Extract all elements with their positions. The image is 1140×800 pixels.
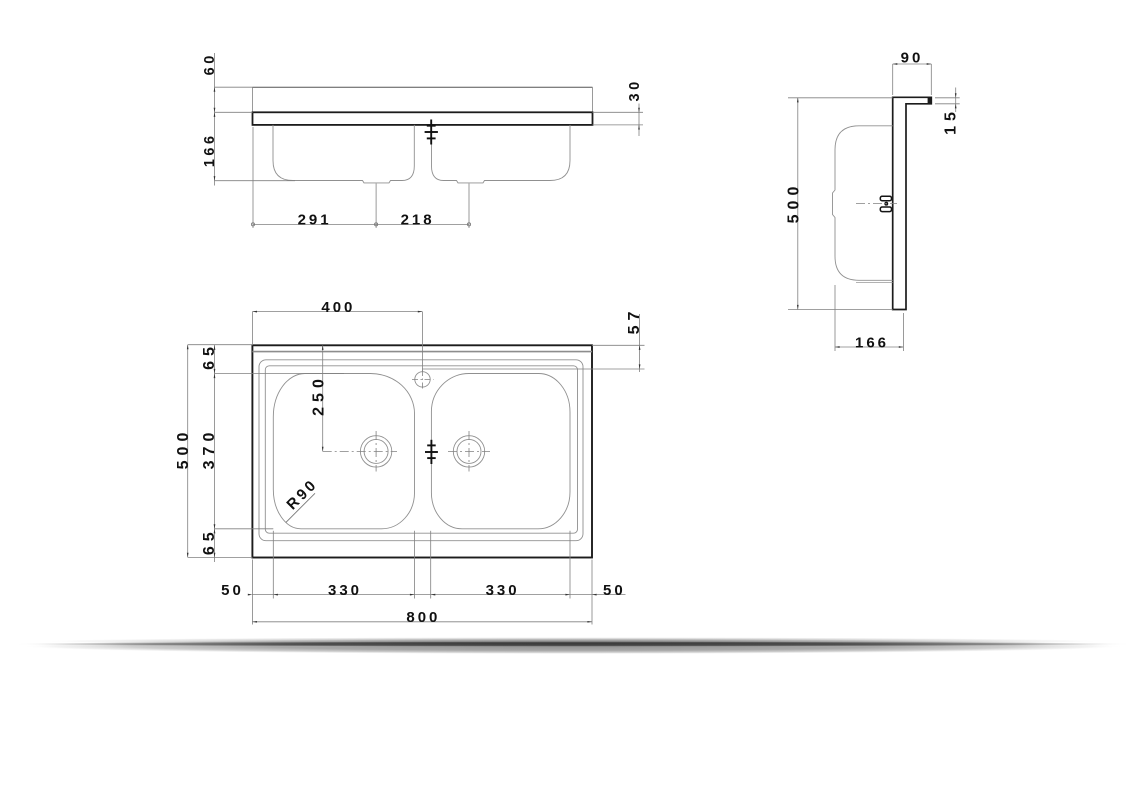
svg-text:R90: R90	[283, 475, 321, 513]
svg-text:291: 291	[298, 211, 332, 228]
svg-text:500: 500	[175, 428, 192, 470]
svg-text:800: 800	[406, 609, 440, 626]
svg-text:30: 30	[627, 78, 643, 101]
svg-text:250: 250	[310, 374, 327, 416]
svg-text:65: 65	[201, 527, 218, 555]
svg-text:15: 15	[942, 107, 959, 135]
svg-text:166: 166	[202, 132, 218, 167]
svg-text:60: 60	[202, 52, 218, 75]
svg-text:65: 65	[201, 342, 218, 370]
svg-text:218: 218	[401, 211, 435, 228]
svg-text:166: 166	[855, 334, 889, 351]
svg-text:50: 50	[603, 582, 626, 599]
svg-text:90: 90	[901, 50, 924, 67]
svg-text:400: 400	[321, 299, 355, 316]
svg-text:330: 330	[486, 582, 520, 599]
svg-text:330: 330	[328, 582, 362, 599]
svg-text:500: 500	[785, 182, 802, 224]
svg-text:370: 370	[201, 428, 218, 470]
svg-text:50: 50	[221, 582, 244, 599]
svg-text:57: 57	[626, 307, 643, 335]
